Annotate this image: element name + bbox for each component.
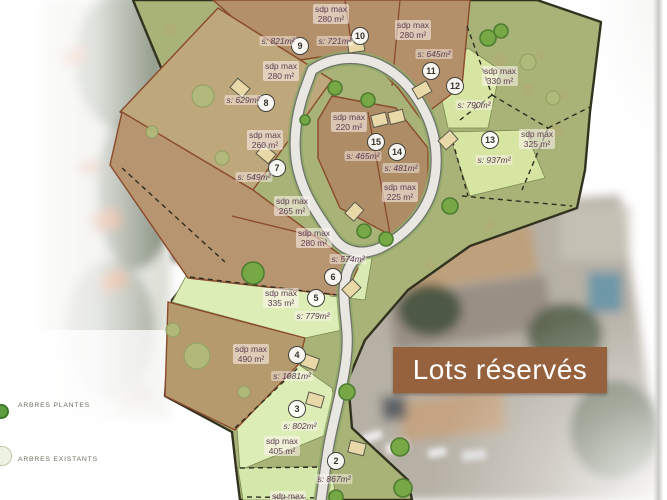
lot-5-surface-label: s: 779m² [294, 311, 331, 321]
lot-10-sdp-label: sdp max280 m² [313, 4, 349, 24]
lot-3-surface-label: s: 802m² [281, 421, 318, 431]
lot-11-number: 11 [422, 62, 440, 80]
legend-item-existing-trees: ARBRES EXISTANTS [18, 456, 98, 463]
legend-planted-label: ARBRES PLANTES [18, 402, 90, 409]
lot-7-sdp-label: sdp max260 m² [247, 130, 283, 150]
lot-5-number: 5 [307, 289, 325, 307]
lot-6-surface-label: s: 574m² [329, 254, 366, 264]
lot-5-sdp-label: sdp max335 m² [263, 288, 299, 308]
lot-8-surface-label: s: 629m² [224, 95, 261, 105]
lot-14-surface-label: s: 481m² [382, 163, 419, 173]
lot-10-surface-label: s: 721m² [316, 36, 353, 46]
middle-strip-sdp-label: sdp max265 m² [274, 196, 310, 216]
lot-2-number: 2 [327, 452, 345, 470]
lot-13-surface-label: s: 937m² [475, 155, 512, 165]
lot-13-sdp-label: sdp max325 m² [519, 129, 555, 149]
lot-6-sdp-label: sdp max280 m² [296, 228, 332, 248]
lot-12-number: 12 [446, 77, 464, 95]
lot-11-surface-label: s: 645m² [415, 49, 452, 59]
lot-3-number: 3 [288, 400, 306, 418]
lot-6-number: 6 [324, 268, 342, 286]
lot-13-number: 13 [481, 131, 499, 149]
lot-4-surface-label: s: 1081m² [271, 371, 313, 381]
site-plan-page: 2 3 4 5 6 7 8 9 10 11 12 13 14 15 sdp ma… [0, 0, 667, 500]
lot-7-surface-label: s: 549m² [235, 172, 272, 182]
page-edge-shadow [653, 0, 667, 500]
lot-15-surface-label: s: 465m² [344, 151, 381, 161]
lot-12-surface-label: s: 790m² [455, 100, 492, 110]
lot-2-sdp-label: sdp max405 m² [264, 436, 300, 456]
legend-existing-label: ARBRES EXISTANTS [18, 456, 98, 463]
lot-11-sdp-label: sdp max280 m² [395, 20, 431, 40]
legend-item-planted-trees: ARBRES PLANTES [18, 402, 90, 409]
site-plan-map [0, 0, 667, 500]
lot-2-surface-label: s: 867m² [315, 474, 352, 484]
lot-4-sdp-label: sdp max490 m² [233, 344, 269, 364]
lot-15-number: 15 [367, 133, 385, 151]
lot-8-sdp-label: sdp max280 m² [263, 61, 299, 81]
bottom-partial-sdp-label: sdp max [270, 491, 306, 500]
lot-14-sdp-label: sdp max225 m² [382, 182, 418, 202]
reserved-lots-banner: Lots réservés [393, 347, 607, 393]
lot-9-surface-label: s: 821m² [259, 36, 296, 46]
lot-14-number: 14 [388, 143, 406, 161]
lot-15-sdp-label: sdp max220 m² [331, 112, 367, 132]
lot-10-number: 10 [351, 27, 369, 45]
lot-4-number: 4 [288, 346, 306, 364]
lot-12-sdp-label: sdp max330 m² [482, 66, 518, 86]
